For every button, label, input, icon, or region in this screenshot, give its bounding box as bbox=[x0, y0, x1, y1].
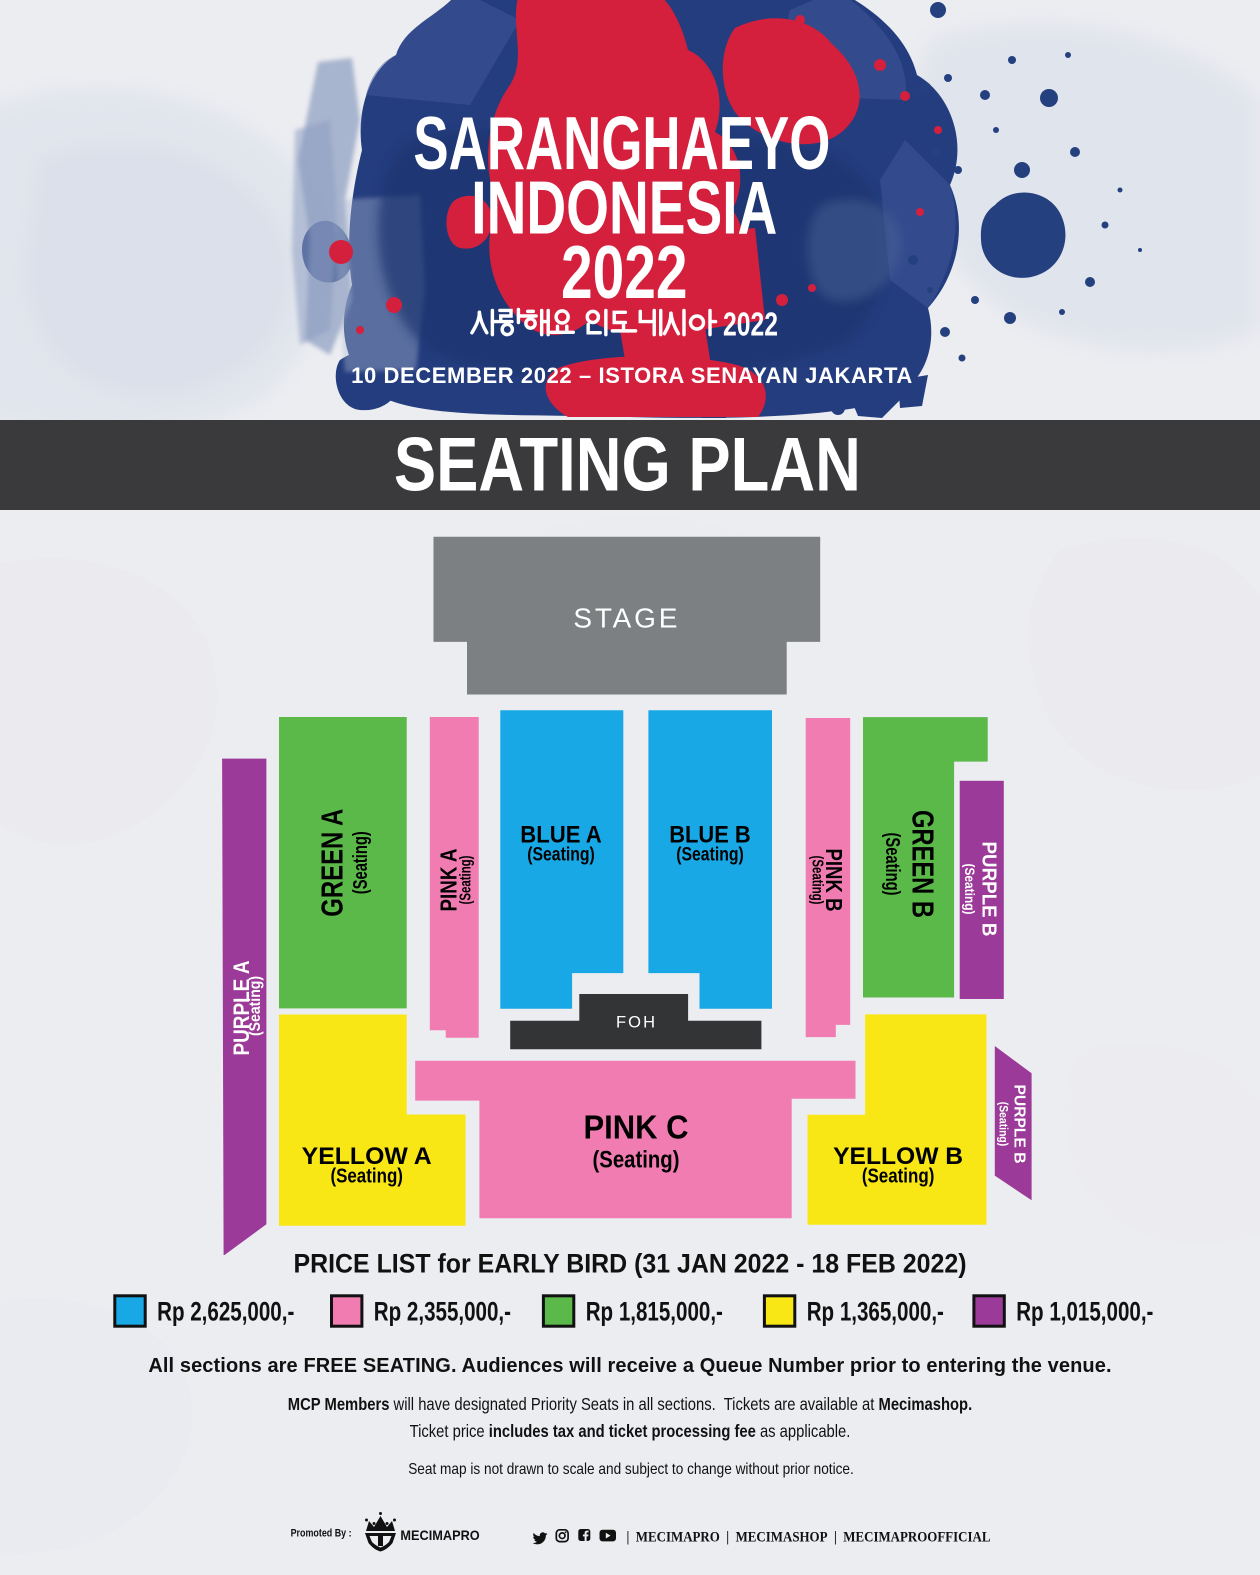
svg-text:MECIMAPRO: MECIMAPRO bbox=[400, 1527, 479, 1543]
svg-text:(Seating): (Seating) bbox=[862, 1166, 935, 1188]
svg-text:SEATING PLAN: SEATING PLAN bbox=[394, 423, 861, 508]
svg-text:(Seating): (Seating) bbox=[527, 845, 595, 866]
svg-text:(Seating): (Seating) bbox=[593, 1147, 680, 1174]
svg-text:GREEN B: GREEN B bbox=[905, 810, 940, 918]
svg-text:GREEN A: GREEN A bbox=[314, 809, 349, 917]
svg-text:(Seating): (Seating) bbox=[676, 845, 744, 866]
svg-text:(Seating): (Seating) bbox=[997, 1102, 1011, 1147]
svg-text:FOH: FOH bbox=[616, 1014, 655, 1032]
svg-text:Rp 1,815,000,-: Rp 1,815,000,- bbox=[586, 1297, 723, 1327]
svg-text:Rp 1,365,000,-: Rp 1,365,000,- bbox=[807, 1297, 944, 1327]
svg-text:PINK C: PINK C bbox=[584, 1109, 689, 1146]
svg-text:Rp 1,015,000,-: Rp 1,015,000,- bbox=[1016, 1297, 1153, 1327]
svg-text:(Seating): (Seating) bbox=[330, 1166, 403, 1188]
svg-text:(Seating): (Seating) bbox=[881, 833, 903, 896]
svg-text:(Seating): (Seating) bbox=[809, 856, 826, 905]
svg-text:(Seating): (Seating) bbox=[962, 864, 978, 915]
svg-text:PURPLE B: PURPLE B bbox=[978, 842, 1000, 937]
svg-text:STAGE: STAGE bbox=[573, 602, 677, 633]
svg-text:Promoted By :: Promoted By : bbox=[291, 1527, 352, 1539]
svg-text:(Seating): (Seating) bbox=[350, 831, 372, 894]
svg-text:2022: 2022 bbox=[561, 230, 688, 314]
svg-text:Rp 2,355,000,-: Rp 2,355,000,- bbox=[374, 1297, 511, 1327]
svg-text:Rp 2,625,000,-: Rp 2,625,000,- bbox=[157, 1297, 294, 1327]
svg-text:(Seating): (Seating) bbox=[457, 856, 474, 905]
svg-text:| MECIMAPRO | MECIMASHOP |: | MECIMAPRO | MECIMASHOP | MECIMAPROOFFI… bbox=[627, 1530, 991, 1546]
svg-text:PRICE LIST for EARLY BIRD (31: PRICE LIST for EARLY BIRD (31 JAN 2022 -… bbox=[294, 1248, 967, 1278]
svg-text:PURPLE B: PURPLE B bbox=[1011, 1085, 1028, 1164]
svg-text:(Seating): (Seating) bbox=[247, 976, 264, 1036]
svg-text:2022: 2022 bbox=[723, 306, 778, 343]
